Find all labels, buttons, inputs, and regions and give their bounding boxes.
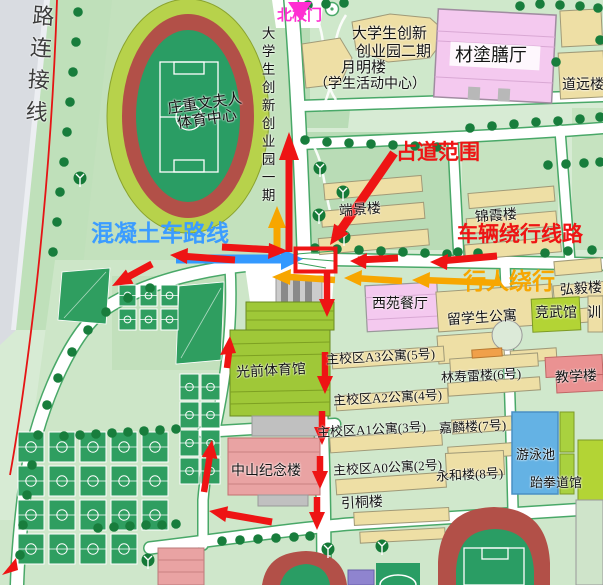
label-yintong: 引桐楼: [341, 495, 384, 512]
label-north-gate: 北校门: [277, 8, 322, 24]
label-innovation-park-2a: 大学生创新: [352, 26, 427, 42]
label-pool: 游泳池: [516, 448, 555, 462]
label-innovation-park-1: 大学生创新创业园一期: [259, 26, 274, 206]
annotation-occupied-area: 占道范围: [396, 142, 480, 165]
campus-map[interactable]: 路连接线 庄重文夫人 体育中心 大学生创新创业园一期 北校门 大学生创新 创业园…: [0, 0, 603, 585]
label-innovation-park-2b: 创业园二期: [356, 44, 431, 60]
label-teaching: 教学楼: [555, 369, 598, 386]
label-xun: 训: [587, 306, 601, 321]
orange-building: [472, 348, 502, 358]
label-caitu-dining: 材塗膳厅: [455, 46, 527, 65]
label-hongyi: 弘毅楼: [560, 281, 603, 299]
label-xiyuan: 西苑餐厅: [372, 297, 428, 312]
annotation-pedestrian-detour: 行人绕行: [463, 269, 555, 294]
label-taekwondo: 跆拳道馆: [530, 476, 582, 490]
dark-pitch-west: [58, 268, 110, 324]
label-yueming: 月明楼: [341, 60, 386, 76]
label-zhongshan: 中山纪念楼: [231, 464, 301, 479]
label-duanjing: 端景楼: [339, 202, 382, 220]
annotation-vehicle-detour: 车辆绕行线路: [457, 224, 583, 247]
label-student-activity-center: （学生活动中心）: [314, 77, 426, 92]
annotation-concrete-route: 混凝土车路线: [91, 221, 229, 246]
dark-pitch-center: [176, 282, 224, 364]
label-jingwu: 竞武馆: [535, 306, 577, 321]
label-daoyuan: 道远楼: [562, 78, 603, 93]
